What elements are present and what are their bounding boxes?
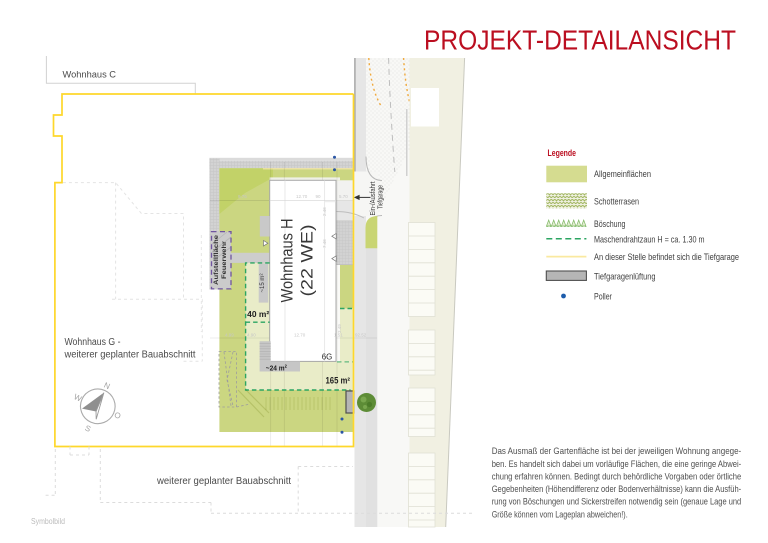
svg-text:weiterer geplanter Bauabschnit: weiterer geplanter Bauabschnitt	[156, 476, 291, 487]
svg-text:90: 90	[316, 194, 322, 199]
svg-text:Allgemeinflächen: Allgemeinflächen	[594, 169, 651, 179]
svg-text:Das Ausmaß der Gartenfläche is: Das Ausmaß der Gartenfläche ist bei der …	[492, 446, 742, 456]
svg-text:5.70: 5.70	[339, 194, 348, 199]
svg-text:Wohnhaus H: Wohnhaus H	[278, 219, 297, 303]
svg-text:Böschung: Böschung	[594, 219, 626, 229]
svg-text:4.90: 4.90	[247, 332, 256, 337]
svg-text:12.70: 12.70	[296, 194, 308, 199]
svg-text:An dieser Stelle befindet sich: An dieser Stelle befindet sich die Tiefg…	[594, 252, 739, 262]
svg-text:chung erfahren können. Bedingt: chung erfahren können. Bedingt durch beh…	[492, 471, 742, 481]
svg-text:~24 m²: ~24 m²	[266, 363, 287, 372]
svg-text:Maschendrahtzaun H = ca. 1.30: Maschendrahtzaun H = ca. 1.30 m	[594, 235, 705, 245]
svg-text:Tiefgarage: Tiefgarage	[377, 185, 384, 209]
svg-text:Poller: Poller	[594, 291, 612, 301]
svg-text:Wohnhaus C: Wohnhaus C	[63, 70, 117, 81]
svg-text:Symbolbild: Symbolbild	[31, 517, 65, 526]
svg-text:12.70: 12.70	[294, 332, 306, 337]
svg-text:4.99: 4.99	[225, 332, 234, 337]
svg-text:3.49: 3.49	[337, 324, 342, 333]
svg-text:9.76: 9.76	[238, 194, 247, 199]
svg-text:Gegebenheiten (Höhendifferenz: Gegebenheiten (Höhendifferenz oder Boden…	[492, 484, 742, 494]
svg-text:Größe können vom Lageplan abwe: Größe können vom Lageplan abweichen!).	[492, 509, 628, 519]
svg-text:Legende: Legende	[548, 148, 577, 158]
svg-text:Schotterrasen: Schotterrasen	[594, 197, 639, 207]
svg-text:7.46: 7.46	[322, 239, 327, 248]
svg-text:Ein-/Ausfahrt: Ein-/Ausfahrt	[370, 181, 377, 215]
svg-text:Wohnhaus G -: Wohnhaus G -	[65, 337, 121, 348]
svg-text:2.46: 2.46	[322, 207, 327, 216]
svg-text:40 m²: 40 m²	[247, 309, 269, 319]
svg-text:(22 WE): (22 WE)	[298, 225, 317, 297]
svg-text:weiterer geplanter Bauabschnit: weiterer geplanter Bauabschnitt	[64, 350, 196, 361]
svg-text:6G: 6G	[322, 352, 333, 362]
svg-text:92.52: 92.52	[355, 332, 367, 337]
svg-text:Aufstellfläche: Aufstellfläche	[213, 235, 220, 285]
svg-text:rung von Böschungen und Sicker: rung von Böschungen und Sickerstreifen n…	[492, 497, 742, 507]
svg-text:PROJEKT-DETAILANSICHT: PROJEKT-DETAILANSICHT	[424, 25, 736, 56]
svg-text:Tiefgaragenlüftung: Tiefgaragenlüftung	[594, 272, 656, 282]
svg-text:ben. Es handelt sich dabei um: ben. Es handelt sich dabei um vorläufige…	[492, 459, 742, 469]
svg-text:165 m²: 165 m²	[326, 376, 351, 386]
svg-text:~15 m²: ~15 m²	[259, 274, 266, 293]
svg-text:Feuerwehr: Feuerwehr	[221, 241, 228, 279]
